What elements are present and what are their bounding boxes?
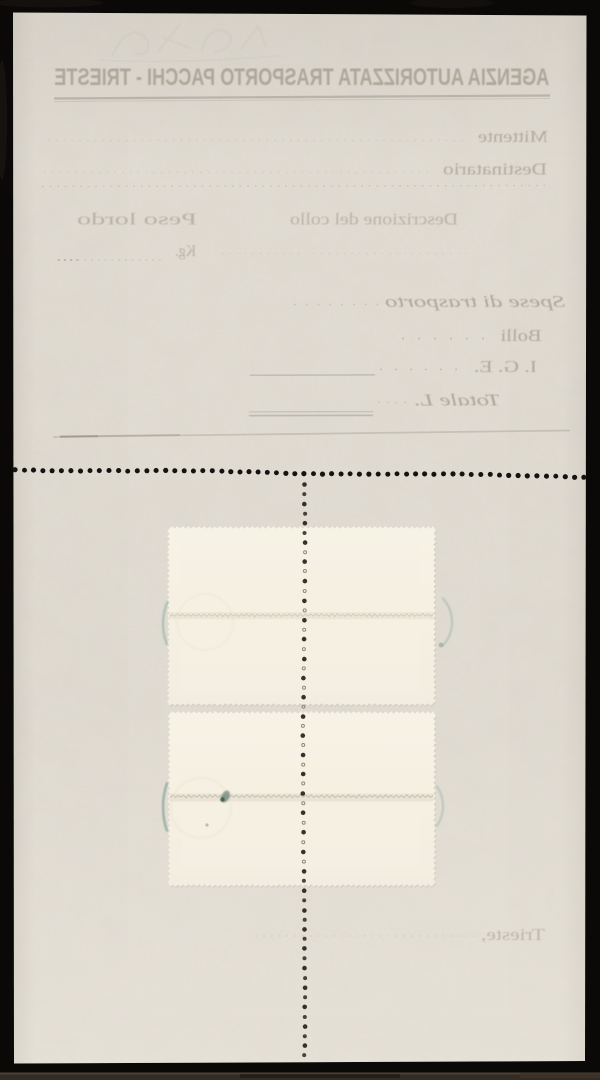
svg-text:Destinatario: Destinatario <box>443 160 547 179</box>
svg-text:Spese di trasporto: Spese di trasporto <box>385 292 565 311</box>
svg-text:AGENZIA AUTORIZZATA TRASPORTO: AGENZIA AUTORIZZATA TRASPORTO PACCHI - T… <box>54 64 549 91</box>
svg-text:Mittente: Mittente <box>478 127 548 146</box>
svg-text:I. G. E.: I. G. E. <box>474 357 537 376</box>
svg-text:Peso lordo: Peso lordo <box>77 210 197 229</box>
svg-text:Kg.: Kg. <box>175 243 196 260</box>
svg-text:Totale L.: Totale L. <box>414 391 501 410</box>
svg-text:Trieste,: Trieste, <box>481 925 545 944</box>
svg-text:Descrizione del collo: Descrizione del collo <box>290 210 458 229</box>
svg-text:Bolli: Bolli <box>500 326 541 345</box>
